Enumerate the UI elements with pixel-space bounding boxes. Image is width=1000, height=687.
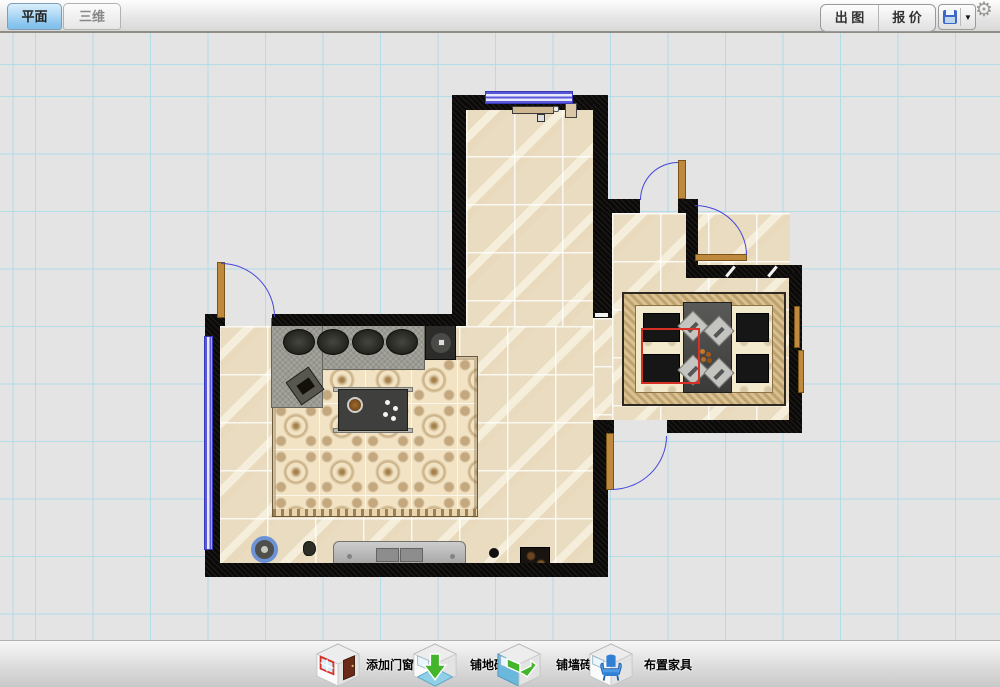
tab-plan-view[interactable]: 平面 [7,3,62,30]
window-sill-right[interactable] [798,350,804,393]
add-door-window-icon[interactable] [313,643,363,687]
door-swing-arc [221,263,275,317]
wall-corridor-left [452,95,466,326]
wall-living-bottom [205,563,608,577]
plate [347,397,363,413]
console-shelf[interactable] [512,106,554,114]
wall-end-cap [595,313,608,317]
header-button-group: 出 图 报 价 [820,4,936,32]
small-object[interactable] [489,548,499,558]
save-button[interactable]: ▼ [938,4,976,30]
cup [385,400,390,405]
quote-button[interactable]: 报 价 [878,5,935,31]
selection-rectangle[interactable] [641,328,700,384]
passage-floor[interactable] [593,318,613,420]
wall-dining-right-top [686,265,802,278]
floorplan-canvas[interactable] [0,33,1000,640]
dining-chair[interactable] [736,313,769,342]
table-centerpiece [698,348,714,364]
tv-screen [400,548,423,562]
coffee-table[interactable] [338,389,408,431]
floppy-disk-icon [943,10,957,24]
window-living-left[interactable] [204,336,213,550]
lay-floor-tile-icon[interactable] [410,643,460,687]
export-drawing-button[interactable]: 出 图 [821,5,878,31]
sofa-cushion [283,329,315,355]
lay-wall-tile-icon[interactable] [494,643,544,687]
wall-dining-top [600,199,640,213]
caret-down-icon[interactable]: ▼ [960,8,972,26]
cup [393,406,398,411]
wall-dining-bottom [667,420,802,433]
cup [383,412,388,417]
sofa-cushion [386,329,418,355]
floor-fan[interactable] [251,536,278,563]
small-item[interactable] [553,106,559,112]
window-sill-right[interactable] [794,306,800,348]
gear-icon[interactable]: ⚙ [975,0,993,22]
door-swing-arc [640,162,678,200]
small-plant[interactable] [303,541,316,556]
window-corridor-top[interactable] [485,91,573,104]
wall-dining-left [593,212,612,318]
bottom-toolbar: 添加门窗 铺地砖 铺墙砖 布置家具 [0,640,1000,687]
tv-cabinet-detail [438,339,445,346]
tv-screen [376,548,399,562]
door-swing-arc [611,436,667,490]
dining-chair[interactable] [736,354,769,383]
sofa-cushion [317,329,349,355]
cup [391,416,396,421]
toolbar-label-arrange-furniture[interactable]: 布置家具 [644,657,692,673]
wall-corridor-right [593,95,608,212]
tab-3d-view[interactable]: 三维 [63,3,121,30]
tv-stand-knob [450,554,455,559]
wall-living-top [272,314,466,326]
door-leaf-dining-top[interactable] [678,160,686,199]
cabinet-small[interactable] [565,103,577,118]
arrange-furniture-icon[interactable] [586,643,636,687]
tv-stand-knob [347,554,352,559]
sofa-cushion [352,329,384,355]
toolbar-label-add-door-window[interactable]: 添加门窗 [366,657,414,673]
tv-cabinet[interactable] [425,325,456,360]
corridor-floor[interactable] [466,108,593,326]
top-toolbar: 平面 三维 出 图 报 价 ▼ ⚙ [0,0,1000,33]
small-box[interactable] [537,114,545,122]
door-leaf-dining-right[interactable] [695,254,747,261]
